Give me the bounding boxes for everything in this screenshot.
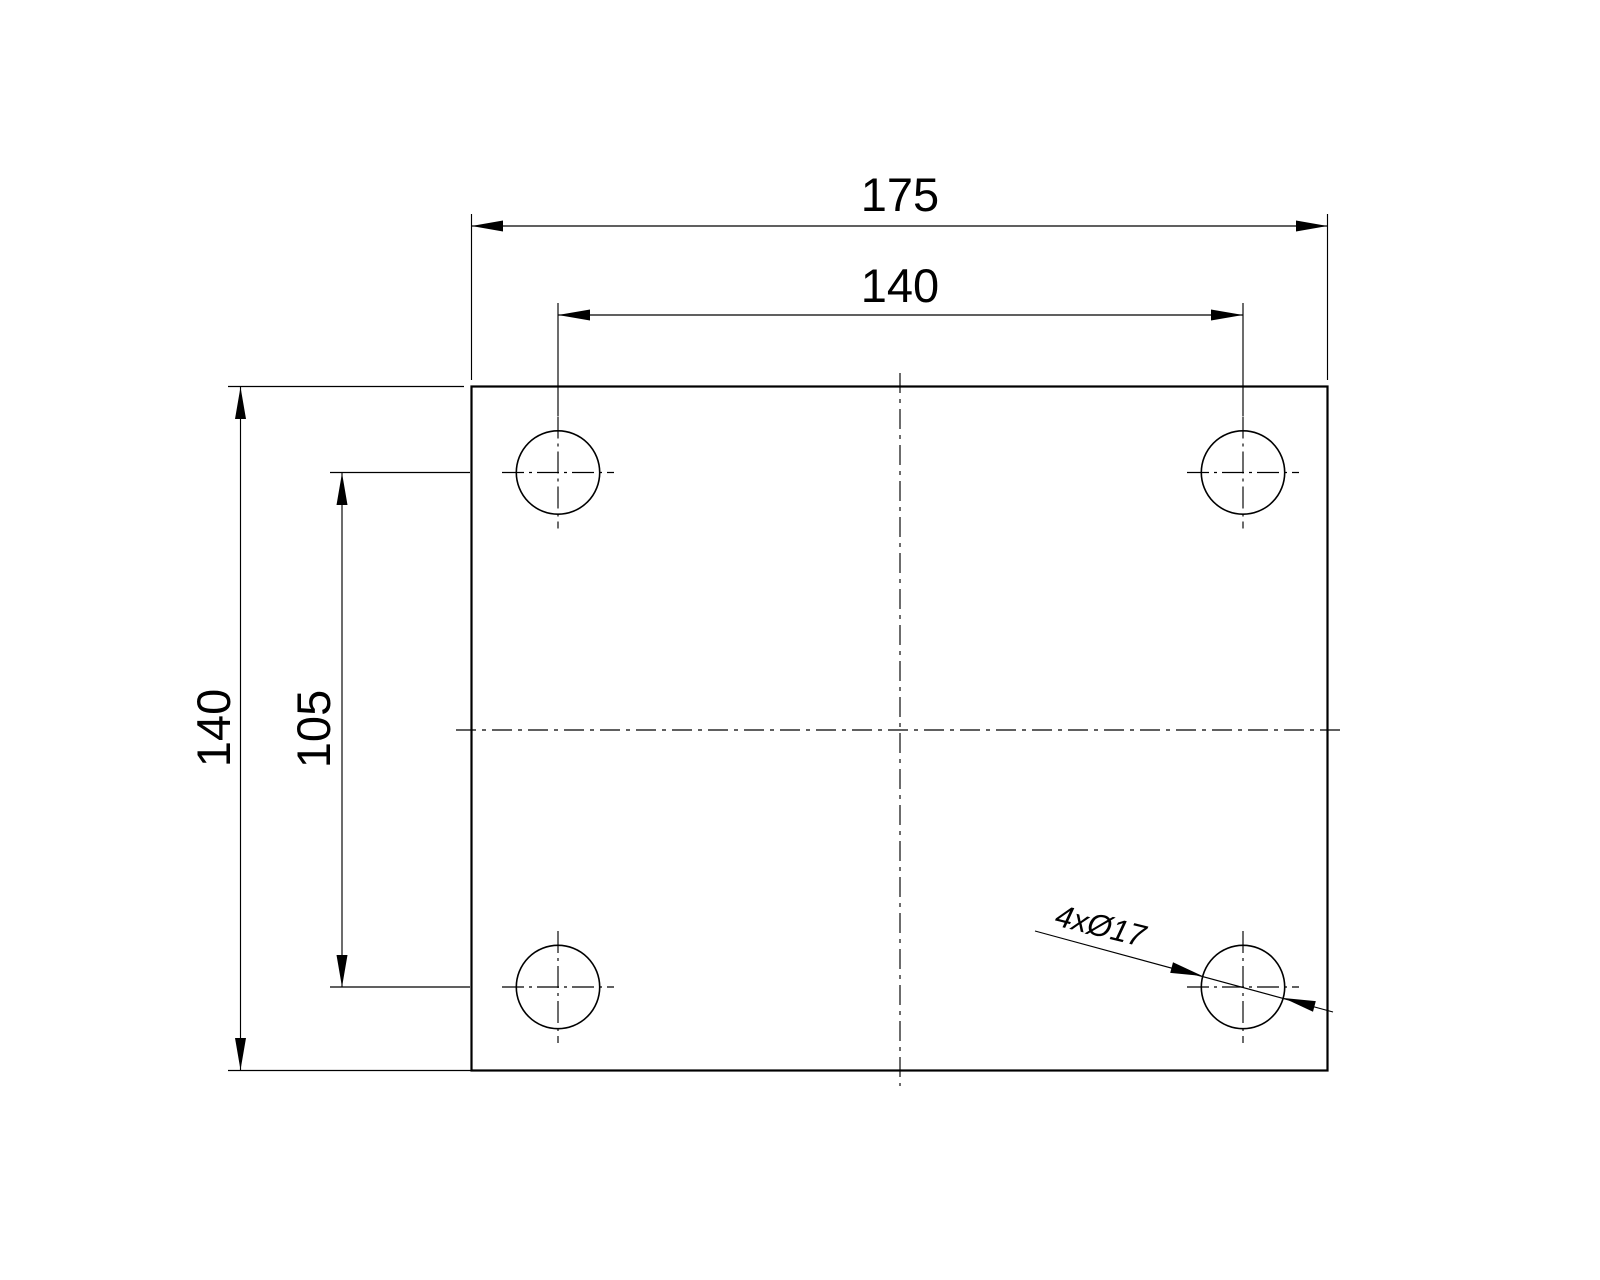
drawing-svg: 175 140 140 105 4xØ17 xyxy=(0,0,1600,1280)
dimension-text-bolt-spacing-vertical: 105 xyxy=(287,690,340,768)
dimension-text-overall-height: 140 xyxy=(187,689,240,767)
dimension-text-bolt-spacing-horizontal: 140 xyxy=(861,259,939,312)
engineering-drawing-canvas: 175 140 140 105 4xØ17 xyxy=(0,0,1600,1280)
dimension-text-overall-width: 175 xyxy=(861,168,939,221)
